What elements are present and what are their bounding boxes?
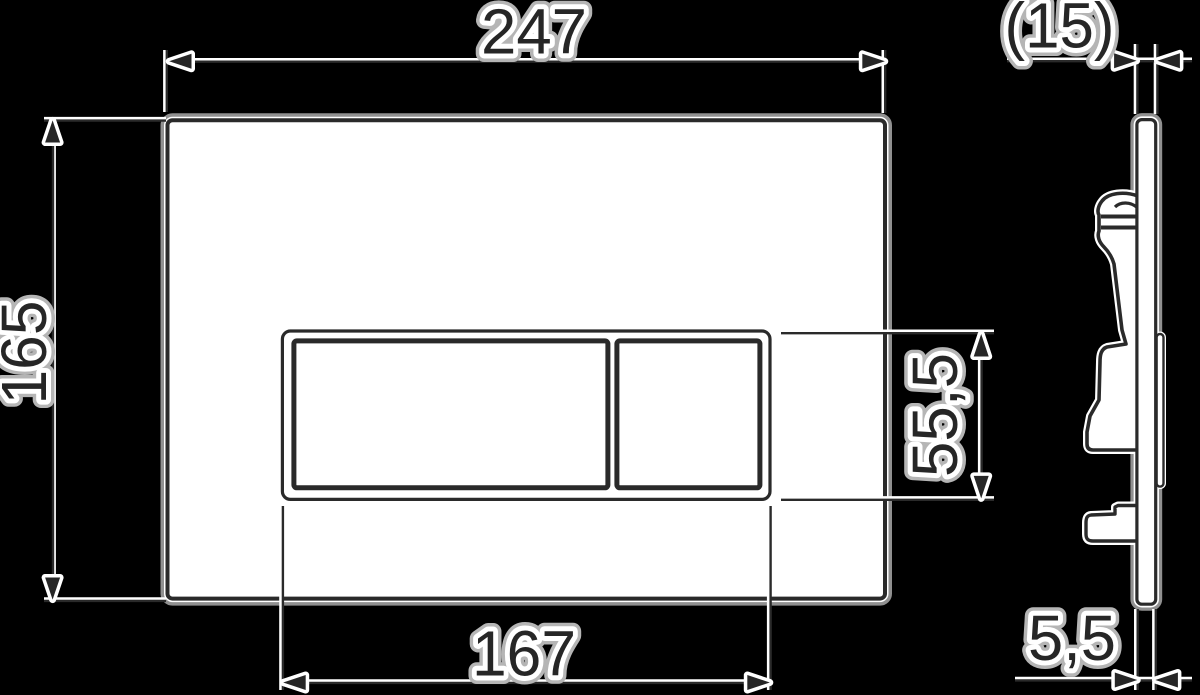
svg-text:165: 165 — [0, 301, 60, 405]
svg-text:247: 247 — [481, 0, 587, 68]
svg-text:(15): (15) — [1005, 0, 1115, 61]
svg-text:167: 167 — [472, 618, 576, 690]
svg-text:5,5: 5,5 — [1028, 602, 1116, 674]
svg-text:55,5: 55,5 — [899, 353, 971, 477]
